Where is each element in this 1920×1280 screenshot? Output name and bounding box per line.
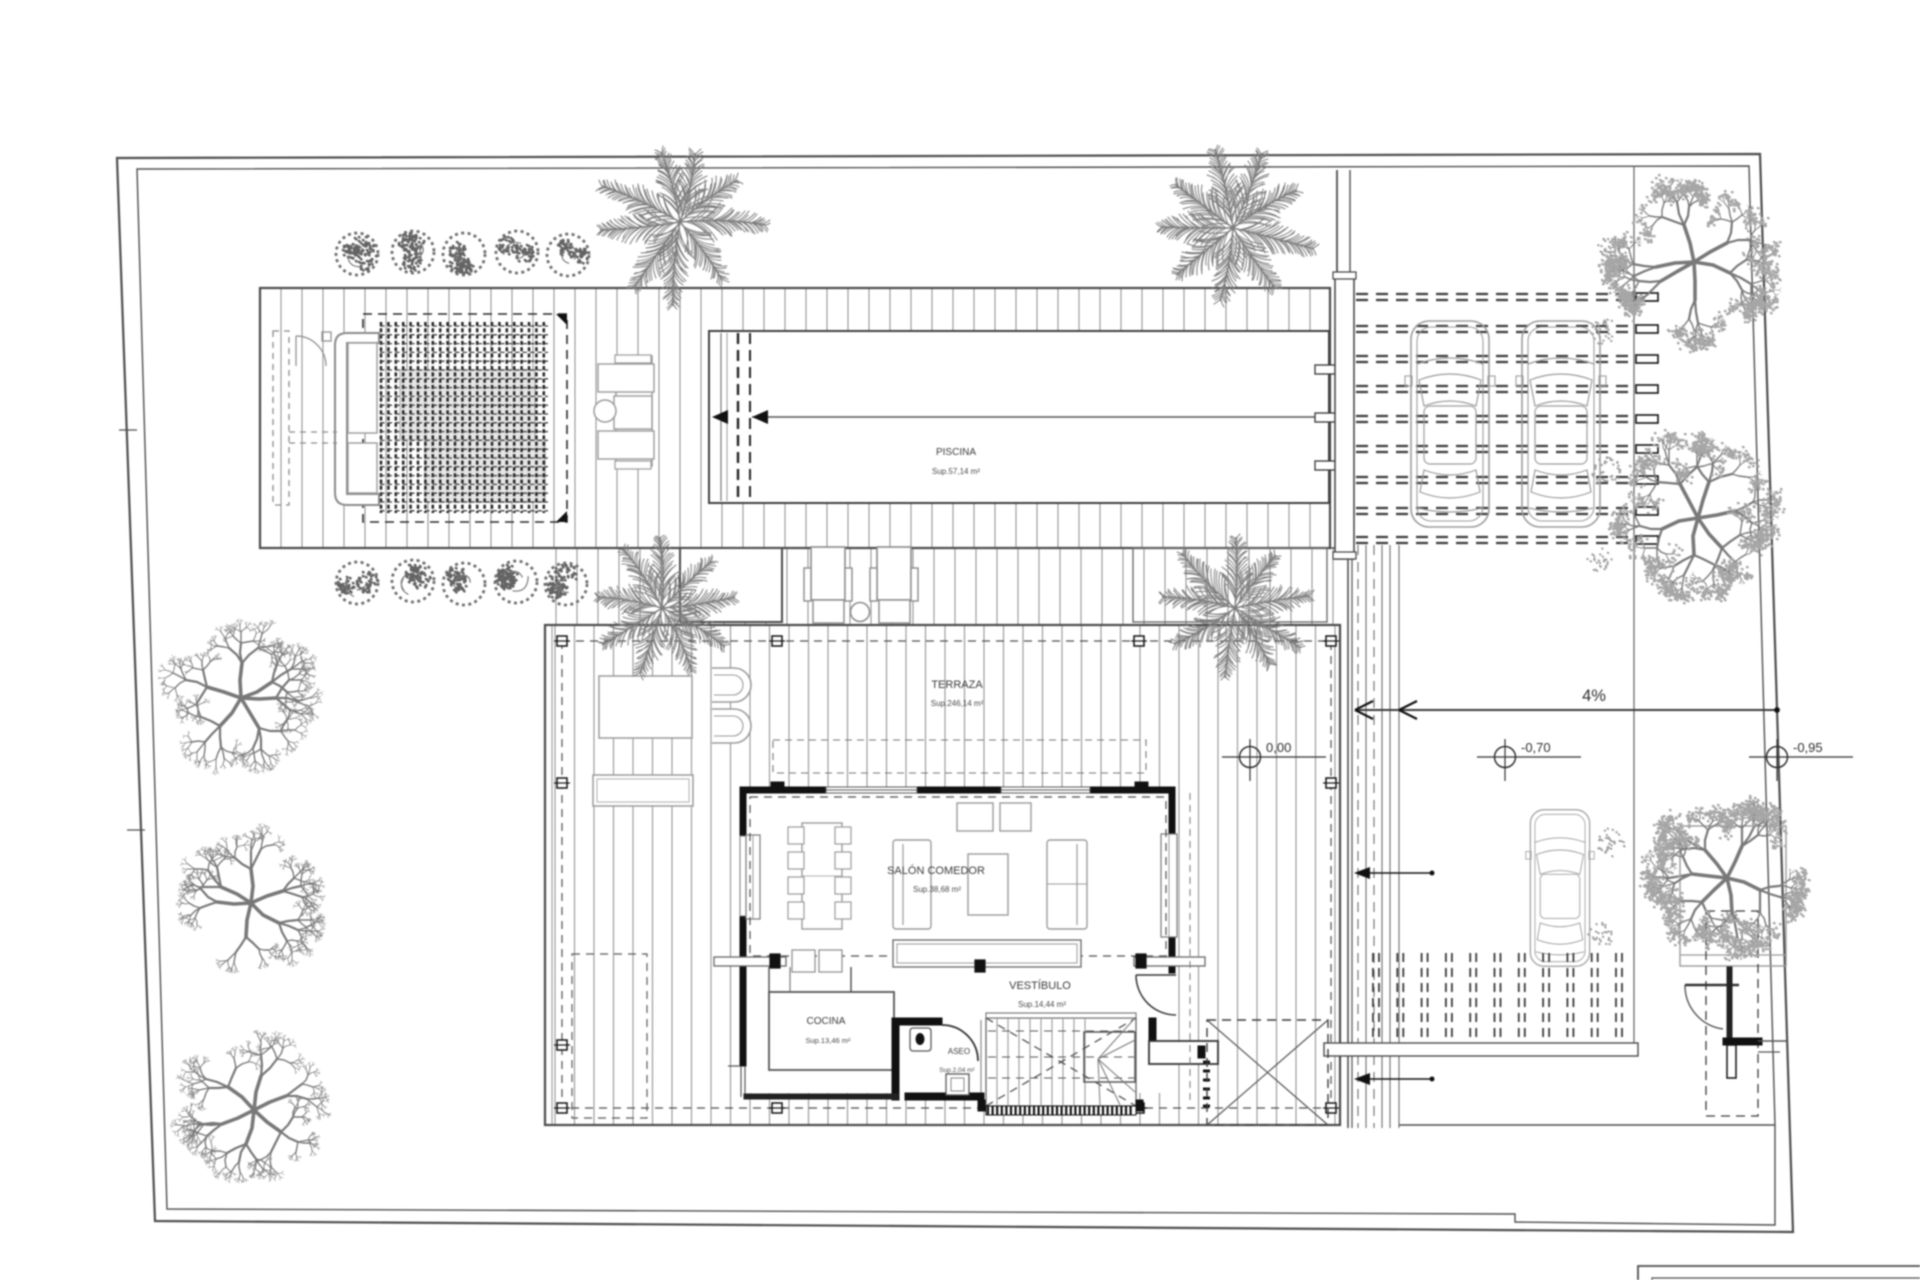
svg-text:Sup.246,14 m²: Sup.246,14 m² (931, 699, 984, 708)
svg-text:ASEO: ASEO (948, 1047, 970, 1056)
svg-text:Sup.13,46 m²: Sup.13,46 m² (805, 1036, 851, 1045)
svg-text:4%: 4% (1582, 687, 1606, 705)
svg-text:Sup.2,04 m²: Sup.2,04 m² (939, 1067, 975, 1074)
svg-text:Sup.38,68 m²: Sup.38,68 m² (913, 885, 961, 894)
svg-text:PISCINA: PISCINA (936, 447, 976, 458)
svg-text:-0,70: -0,70 (1521, 740, 1551, 755)
svg-text:VESTÍBULO: VESTÍBULO (1009, 979, 1071, 992)
svg-text:TERRAZA: TERRAZA (931, 679, 983, 691)
svg-text:0,00: 0,00 (1266, 740, 1291, 755)
svg-text:Sup.57,14 m²: Sup.57,14 m² (932, 467, 980, 476)
svg-text:COCINA: COCINA (807, 1016, 846, 1027)
svg-text:-0,95: -0,95 (1793, 740, 1823, 755)
svg-text:SALÓN COMEDOR: SALÓN COMEDOR (887, 864, 985, 877)
svg-text:Sup.14,44 m²: Sup.14,44 m² (1018, 1000, 1066, 1009)
